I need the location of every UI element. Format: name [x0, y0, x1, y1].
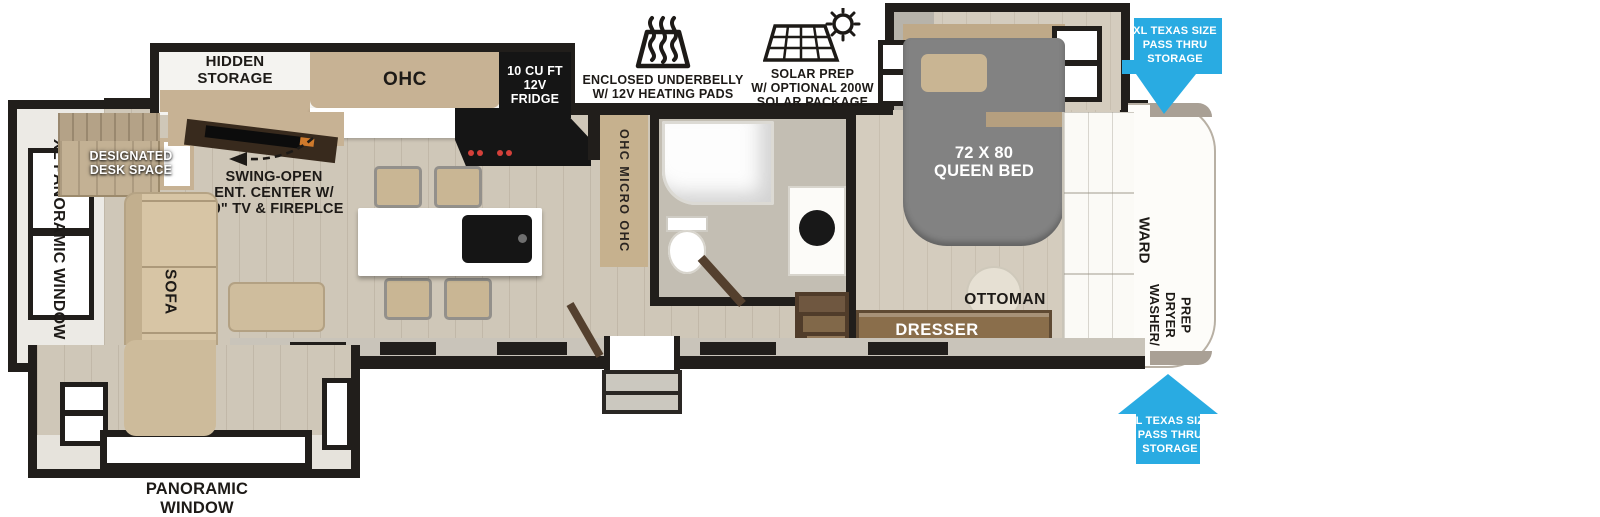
fridge-label: 10 CU FT 12V FRIDGE	[499, 54, 571, 116]
slide-window-left-mullion	[63, 410, 105, 416]
bottom-wall	[230, 356, 1145, 369]
slide-window-right	[322, 378, 352, 450]
dining-chair	[434, 166, 482, 208]
pass-thru-bottom-label: XL TEXAS SIZE PASS THRU STORAGE	[1128, 412, 1212, 460]
entry-door-opening	[604, 336, 680, 370]
panoramic-window-label: PANORAMIC WINDOW	[117, 480, 277, 517]
ohc-cabinet-label: OHC	[310, 52, 500, 108]
dining-chair	[384, 278, 432, 320]
solar-prep-icon	[763, 8, 861, 68]
bottom-window	[497, 342, 567, 355]
bedroom-shelf	[986, 112, 1062, 127]
vanity-sink	[799, 210, 835, 246]
dining-chair	[374, 166, 422, 208]
range-burner	[497, 150, 503, 156]
sofa-corner	[124, 340, 216, 436]
entry-steps	[602, 370, 682, 414]
heated-underbelly-icon	[622, 6, 702, 70]
bottom-window	[868, 342, 948, 355]
bottom-window	[700, 342, 776, 355]
island-faucet	[518, 234, 527, 243]
desk-label: DESIGNATED DESK SPACE	[60, 146, 202, 180]
micro-ohc-label: OHC MICRO OHC	[612, 120, 636, 262]
hidden-storage-label: HIDDEN STORAGE	[160, 52, 310, 90]
solar-prep-label: SOLAR PREP W/ OPTIONAL 200W SOLAR PACKAG…	[740, 66, 885, 110]
pass-thru-top-label: XL TEXAS SIZE PASS THRU STORAGE	[1132, 22, 1218, 70]
shower	[662, 121, 774, 205]
underbelly-label: ENCLOSED UNDERBELLY W/ 12V HEATING PADS	[582, 72, 744, 102]
sofa-left-label: SOFA	[158, 232, 182, 352]
desk-hutch	[58, 113, 160, 141]
swing-open-arrow	[225, 130, 320, 166]
queen-bed-label: 72 X 80 QUEEN BED	[903, 140, 1065, 184]
panoramic-window	[100, 430, 312, 470]
range-burner	[468, 150, 474, 156]
bed-pillow	[921, 54, 987, 92]
wardrobe	[1062, 112, 1134, 356]
fridge-corner-wall	[588, 108, 600, 160]
washer-dryer-prep-label: WASHER/ DRYER PREP	[1146, 272, 1194, 358]
range-burner	[477, 150, 483, 156]
bottom-window	[380, 342, 436, 355]
bottom-wall-face	[230, 338, 1145, 358]
hidden-storage-cabinet	[160, 90, 310, 112]
wardrobe-label: WARD	[1132, 205, 1154, 275]
ottoman-label: OTTOMAN	[940, 290, 1070, 310]
dining-chair	[444, 278, 492, 320]
range-burner	[506, 150, 512, 156]
floorplan: XL PANORAMIC WINDOW HIDDEN STORAGE OHC 1…	[0, 0, 1600, 517]
coffee-table	[228, 282, 325, 332]
